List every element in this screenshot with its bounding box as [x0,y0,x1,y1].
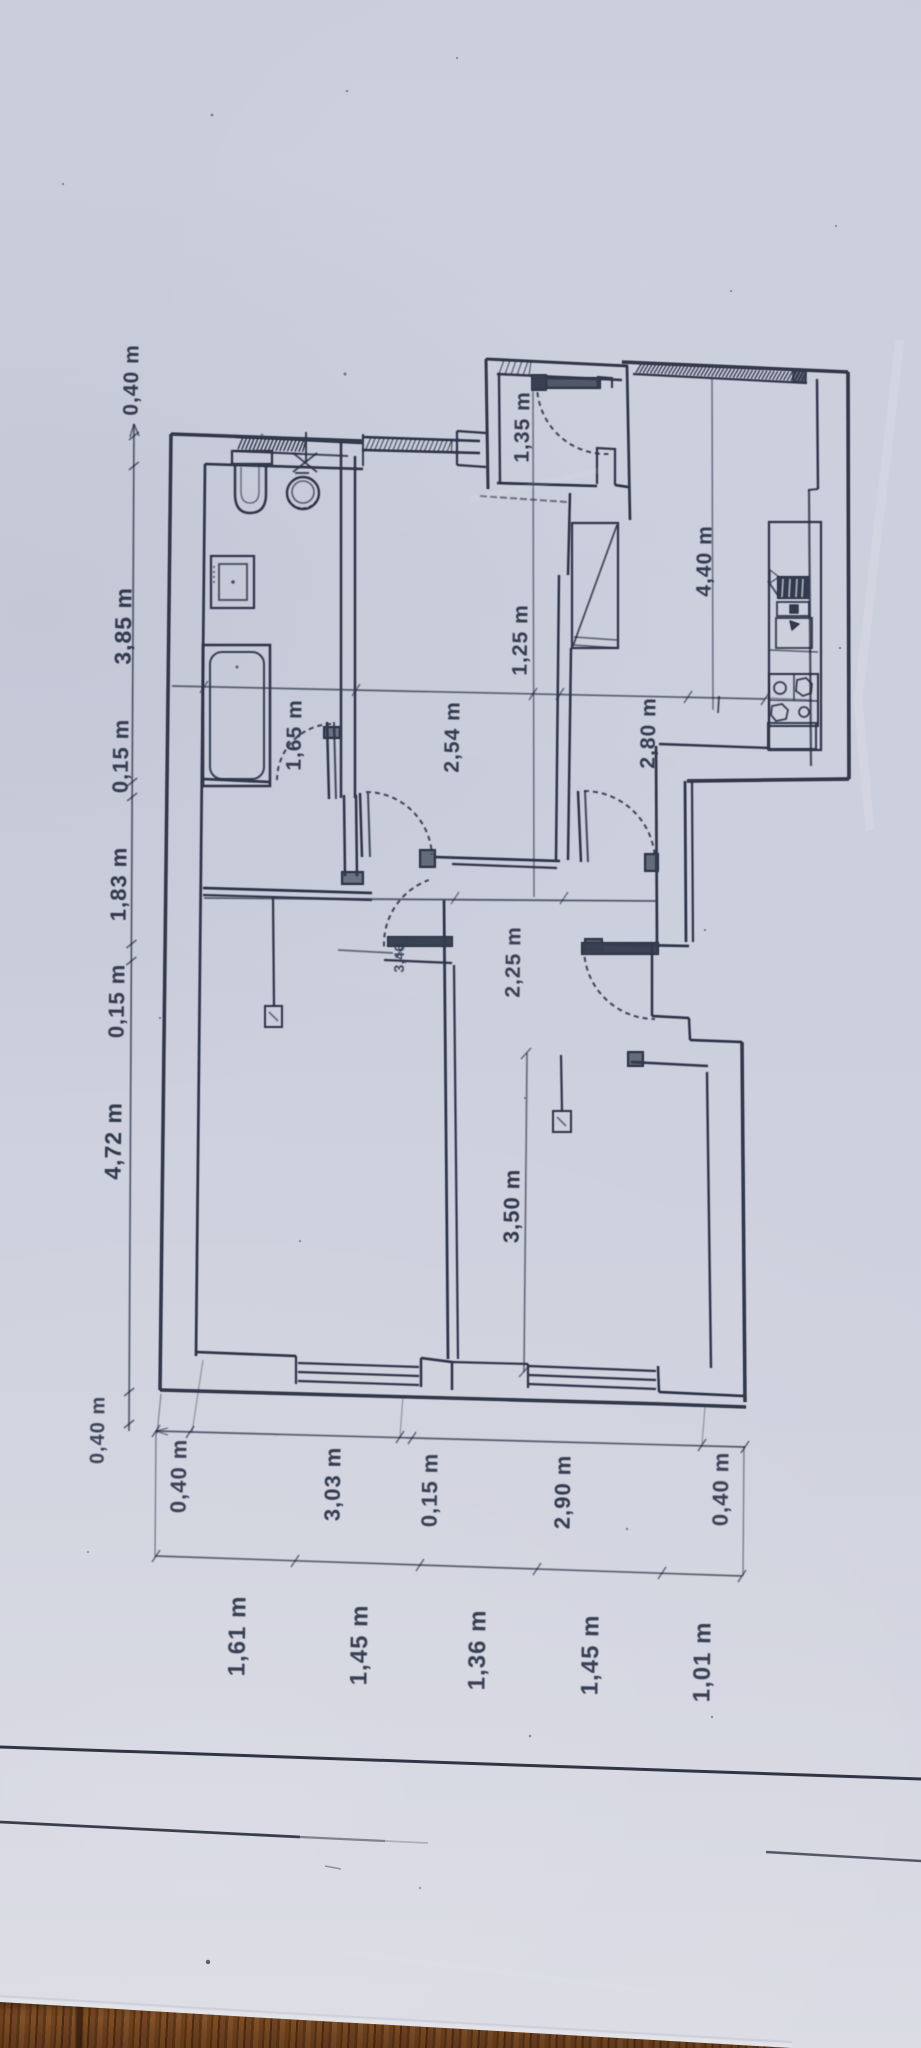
svg-text:2,54 m: 2,54 m [441,701,465,773]
svg-text:2,25 m: 2,25 m [502,926,526,998]
svg-text:0,40 m: 0,40 m [87,1396,110,1465]
svg-text:3,85 m: 3,85 m [109,587,136,665]
svg-text:0,15 m: 0,15 m [103,963,129,1038]
svg-text:0,40 m: 0,40 m [165,1438,191,1513]
svg-text:1,35 m: 1,35 m [511,391,535,463]
svg-text:0,40 m: 0,40 m [120,344,144,416]
svg-text:0,15 m: 0,15 m [416,1452,442,1527]
svg-text:1,01 m: 1,01 m [688,1621,716,1702]
svg-text:0,15 m: 0,15 m [107,718,133,793]
svg-text:3,46: 3,46 [391,943,407,972]
svg-text:1,45 m: 1,45 m [345,1604,373,1685]
svg-text:1,36 m: 1,36 m [463,1609,491,1690]
svg-text:2,90 m: 2,90 m [549,1454,575,1529]
svg-text:1,83 m: 1,83 m [105,846,131,921]
svg-text:1,25 m: 1,25 m [509,604,533,676]
svg-text:1,45 m: 1,45 m [576,1614,604,1695]
svg-text:4,72 m: 4,72 m [99,1102,126,1180]
svg-text:0,40 m: 0,40 m [707,1451,733,1526]
svg-text:1,61 m: 1,61 m [223,1595,251,1676]
svg-text:3,50 m: 3,50 m [498,1168,524,1243]
svg-text:2,80 m: 2,80 m [637,697,661,769]
svg-text:3,03 m: 3,03 m [319,1446,345,1521]
svg-text:1,65 m: 1,65 m [283,699,307,771]
svg-text:4,40 m: 4,40 m [693,525,717,597]
